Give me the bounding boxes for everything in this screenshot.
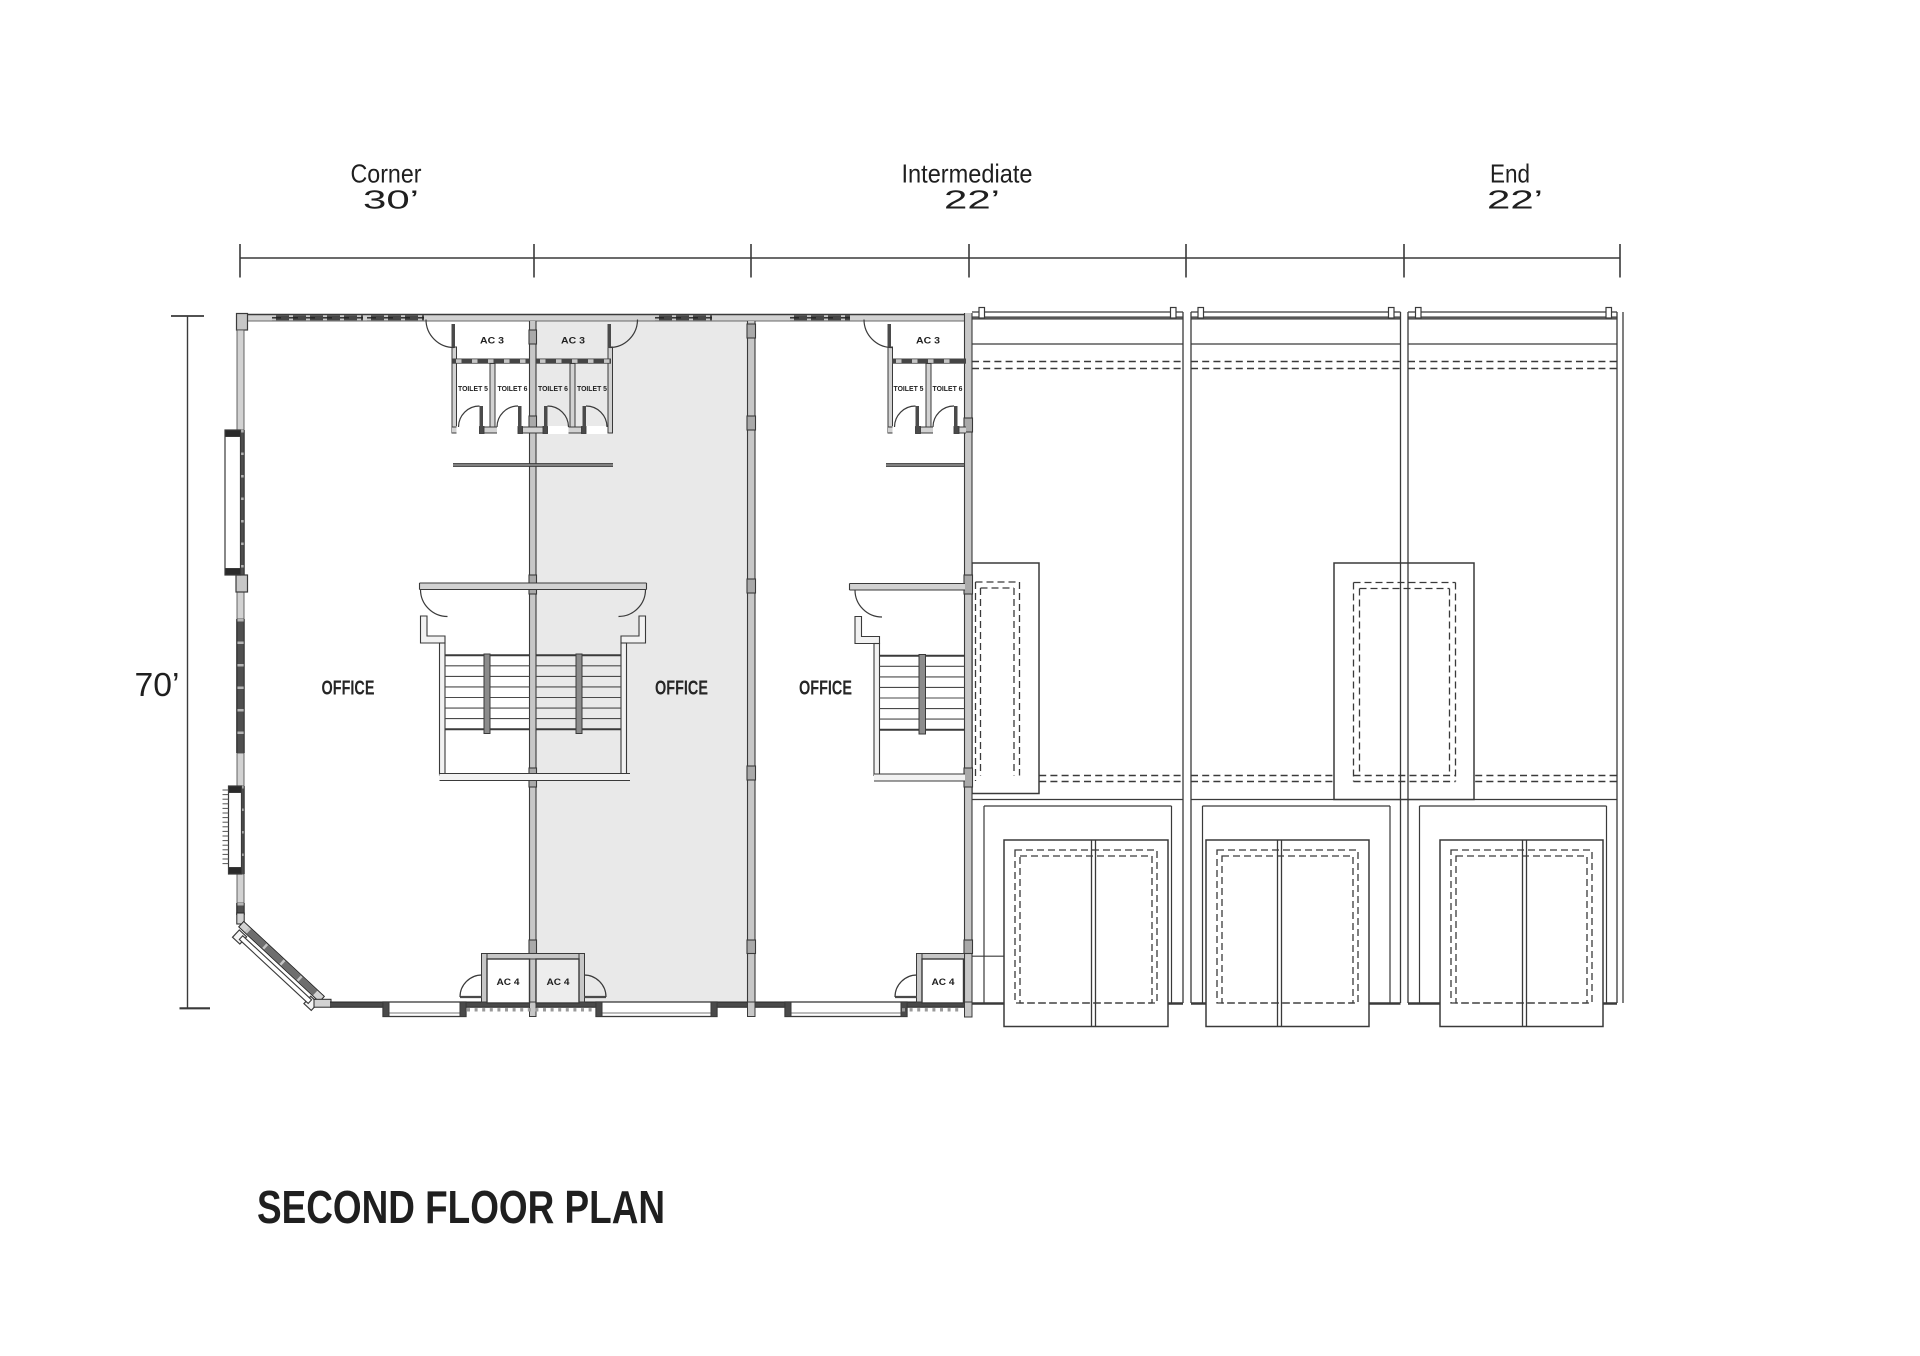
svg-text:30’: 30’ bbox=[363, 185, 419, 215]
svg-text:22’: 22’ bbox=[944, 185, 1000, 215]
svg-text:TOILET 6: TOILET 6 bbox=[538, 384, 568, 393]
svg-text:OFFICE: OFFICE bbox=[799, 678, 852, 700]
svg-text:TOILET 5: TOILET 5 bbox=[458, 384, 488, 393]
svg-text:AC 3: AC 3 bbox=[916, 336, 940, 347]
svg-text:AC 3: AC 3 bbox=[561, 336, 585, 347]
svg-text:TOILET 6: TOILET 6 bbox=[498, 384, 528, 393]
svg-text:TOILET 5: TOILET 5 bbox=[577, 384, 607, 393]
svg-text:TOILET 5: TOILET 5 bbox=[894, 384, 924, 393]
svg-text:70’: 70’ bbox=[135, 666, 180, 703]
svg-text:TOILET 6: TOILET 6 bbox=[933, 384, 963, 393]
svg-text:AC 4: AC 4 bbox=[932, 977, 955, 987]
svg-text:AC 4: AC 4 bbox=[547, 977, 570, 987]
svg-text:SECOND FLOOR PLAN: SECOND FLOOR PLAN bbox=[257, 1181, 665, 1233]
svg-text:OFFICE: OFFICE bbox=[322, 678, 375, 700]
svg-text:22’: 22’ bbox=[1487, 185, 1543, 215]
svg-text:AC 3: AC 3 bbox=[480, 336, 504, 347]
svg-text:OFFICE: OFFICE bbox=[655, 678, 708, 700]
svg-text:AC 4: AC 4 bbox=[497, 977, 520, 987]
